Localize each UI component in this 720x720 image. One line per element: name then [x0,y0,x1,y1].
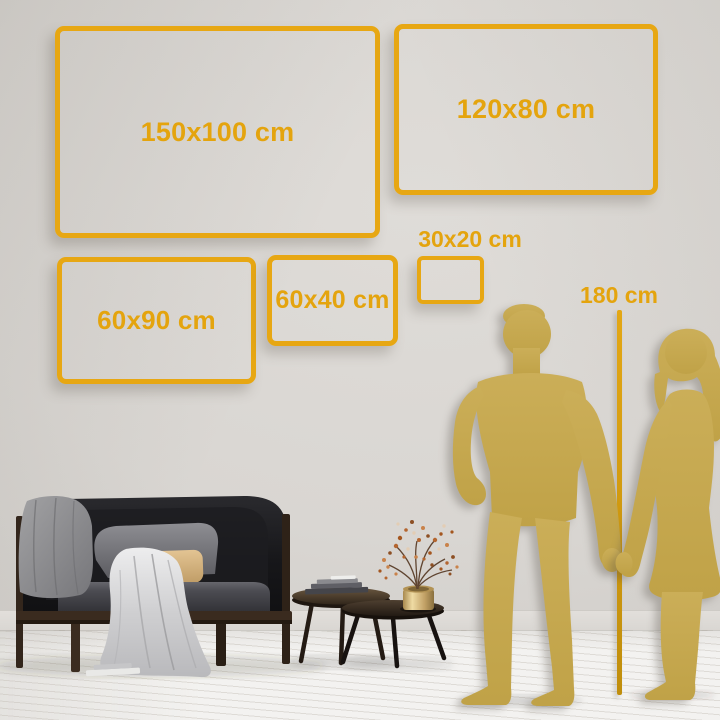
frame-60x40: 60x40 cm [267,255,398,346]
size-label-60x90: 60x90 cm [97,305,216,336]
size-label-150x100: 150x100 cm [141,117,295,148]
frame-30x20 [417,256,484,304]
size-guide-scene: 150x100 cm 120x80 cm 60x90 cm 60x40 cm 3… [0,0,720,720]
frame-120x80: 120x80 cm [394,24,658,195]
frame-150x100: 150x100 cm [55,26,380,238]
size-label-30x20: 30x20 cm [412,226,528,253]
floor [0,630,720,720]
size-label-60x40: 60x40 cm [275,286,389,315]
height-marker-label: 180 cm [574,282,664,309]
frame-60x90: 60x90 cm [57,257,256,384]
height-marker-line [617,310,622,695]
size-label-120x80: 120x80 cm [457,94,595,125]
